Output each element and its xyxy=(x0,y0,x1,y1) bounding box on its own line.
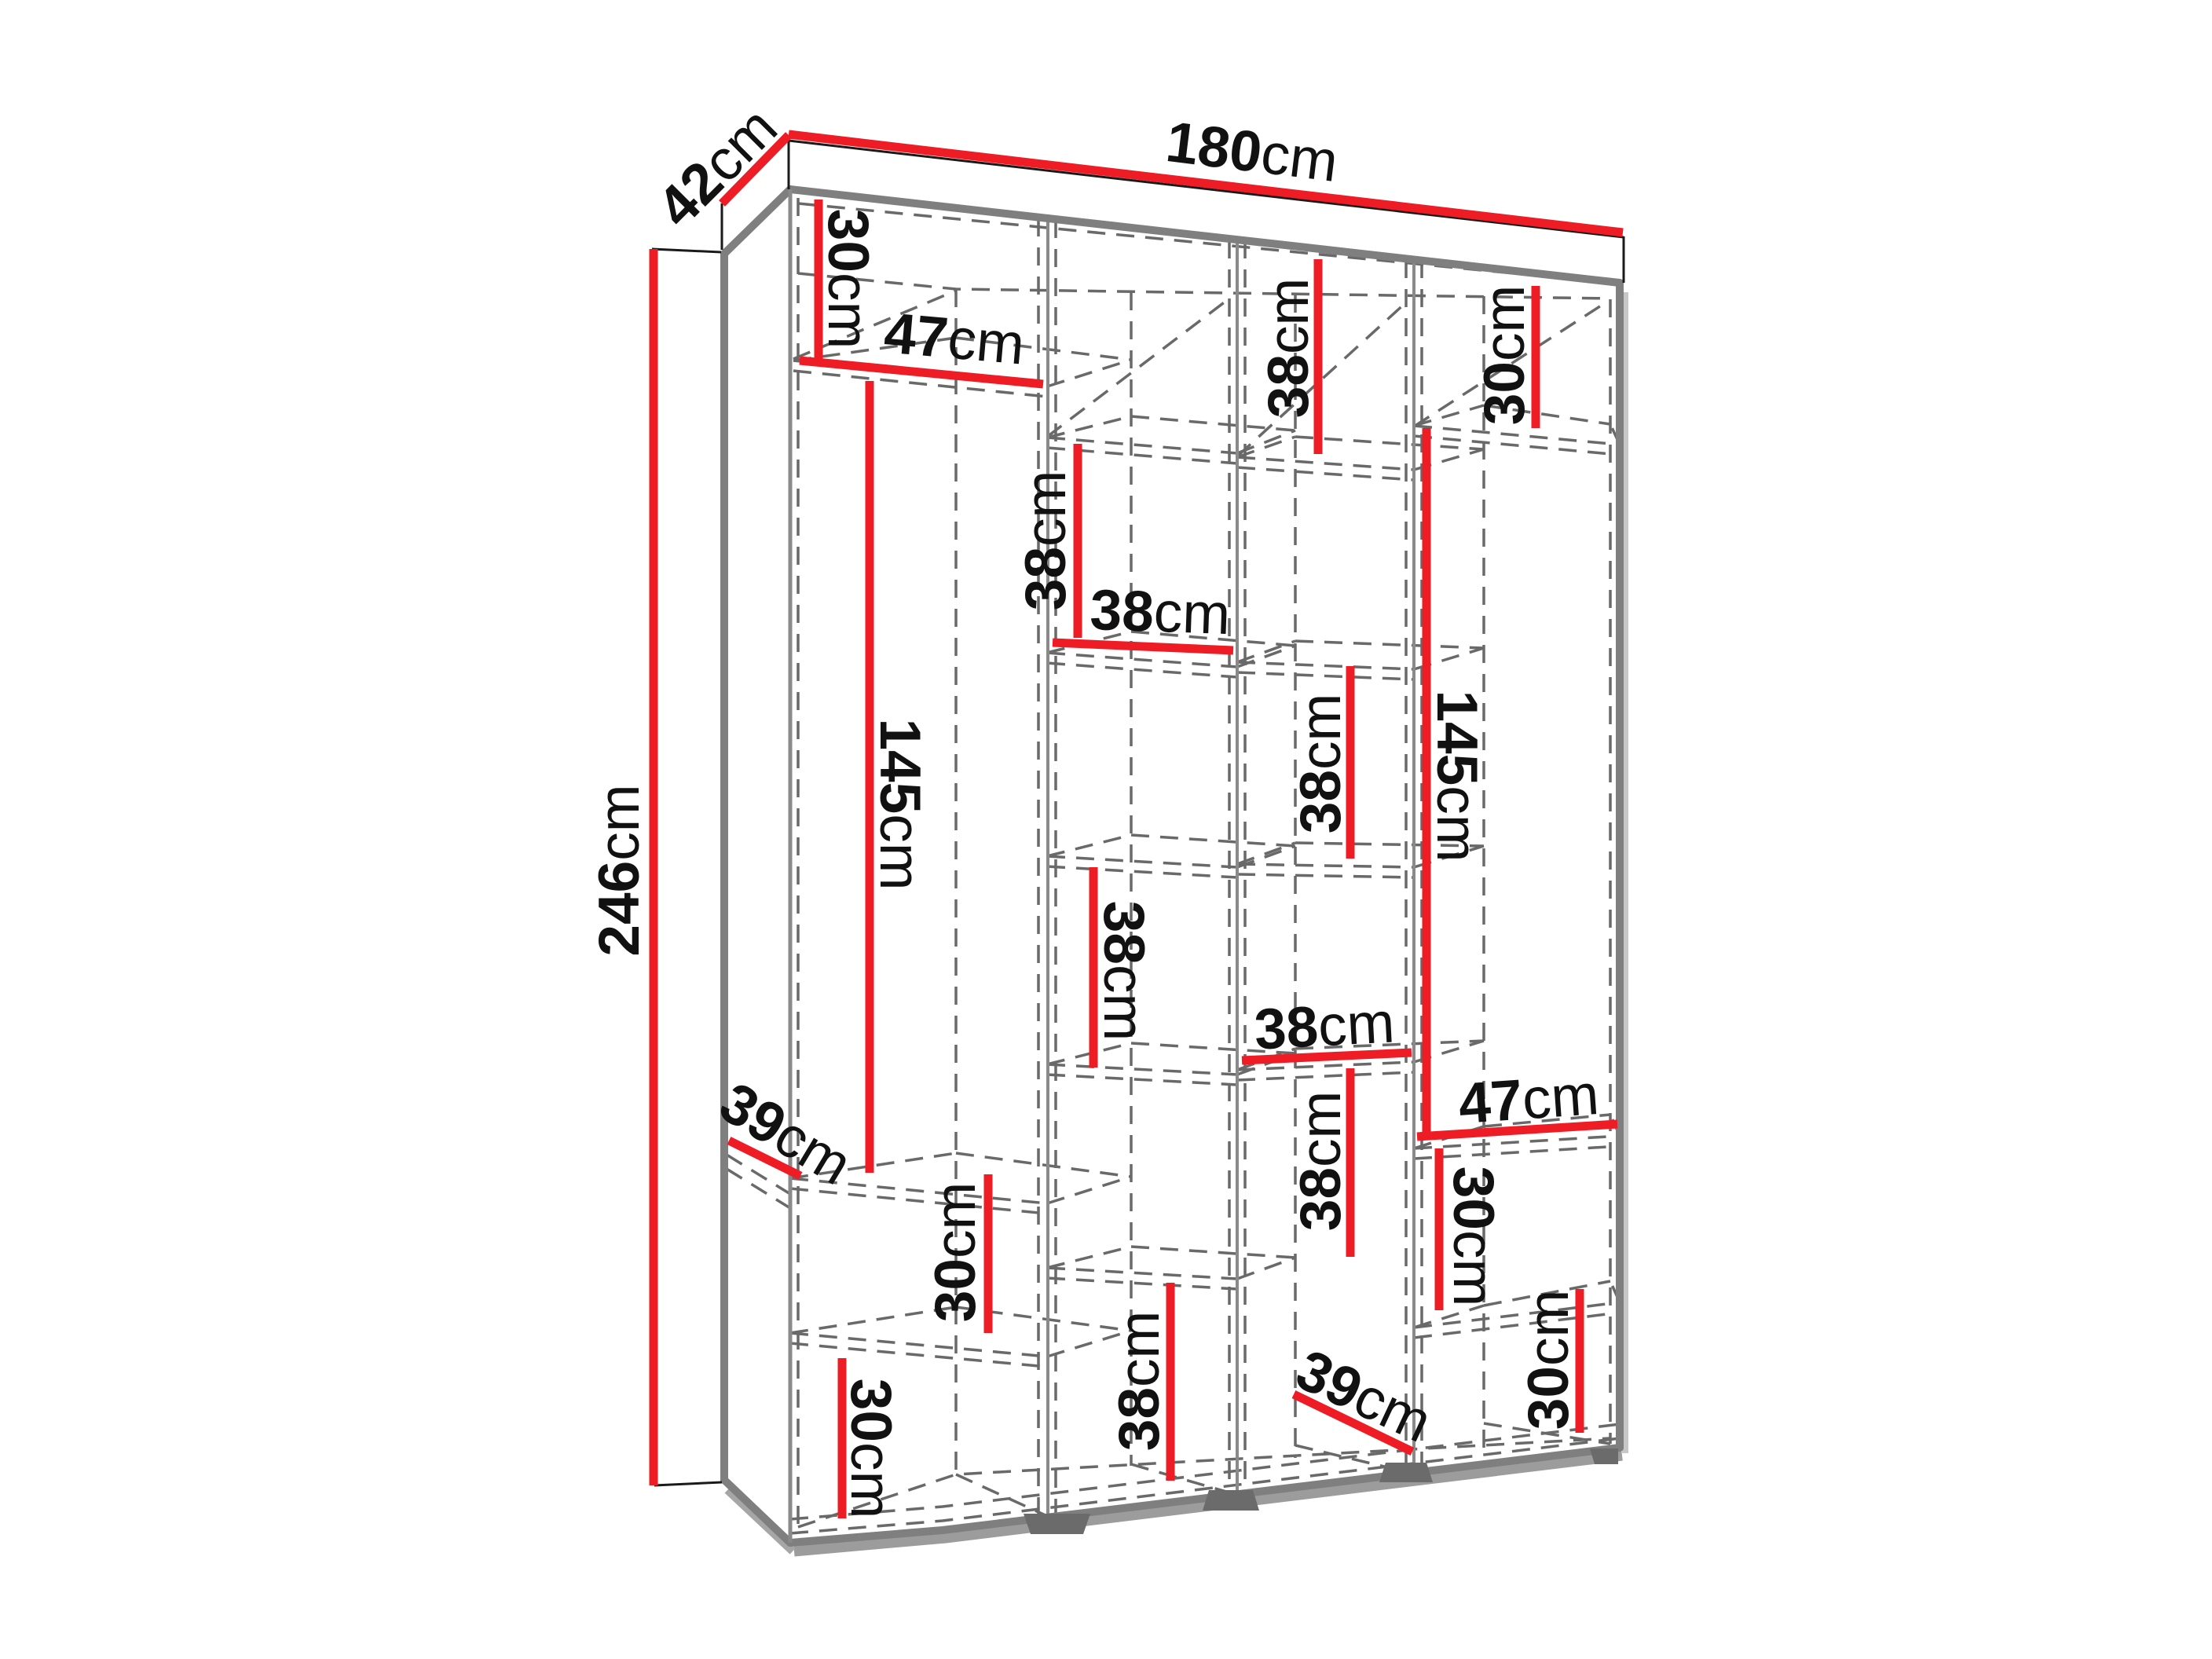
svg-text:30cm: 30cm xyxy=(816,209,880,350)
svg-text:30cm: 30cm xyxy=(1441,1166,1505,1307)
svg-text:30cm: 30cm xyxy=(839,1379,903,1519)
svg-text:47cm: 47cm xyxy=(881,301,1027,376)
svg-text:38cm: 38cm xyxy=(1257,278,1320,419)
svg-text:38cm: 38cm xyxy=(1089,578,1231,646)
svg-text:47cm: 47cm xyxy=(1456,1063,1601,1136)
svg-text:38cm: 38cm xyxy=(1289,694,1353,834)
svg-text:38cm: 38cm xyxy=(1253,991,1397,1061)
svg-text:30cm: 30cm xyxy=(1517,1290,1580,1430)
svg-text:30cm: 30cm xyxy=(1473,285,1536,426)
svg-text:38cm: 38cm xyxy=(1108,1311,1171,1452)
svg-text:38cm: 38cm xyxy=(1289,1091,1353,1232)
svg-text:38cm: 38cm xyxy=(1014,471,1078,611)
svg-text:145cm: 145cm xyxy=(1425,690,1489,862)
svg-text:246cm: 246cm xyxy=(588,784,651,956)
svg-text:145cm: 145cm xyxy=(868,718,932,890)
svg-text:30cm: 30cm xyxy=(924,1182,987,1323)
svg-text:38cm: 38cm xyxy=(1092,901,1155,1042)
